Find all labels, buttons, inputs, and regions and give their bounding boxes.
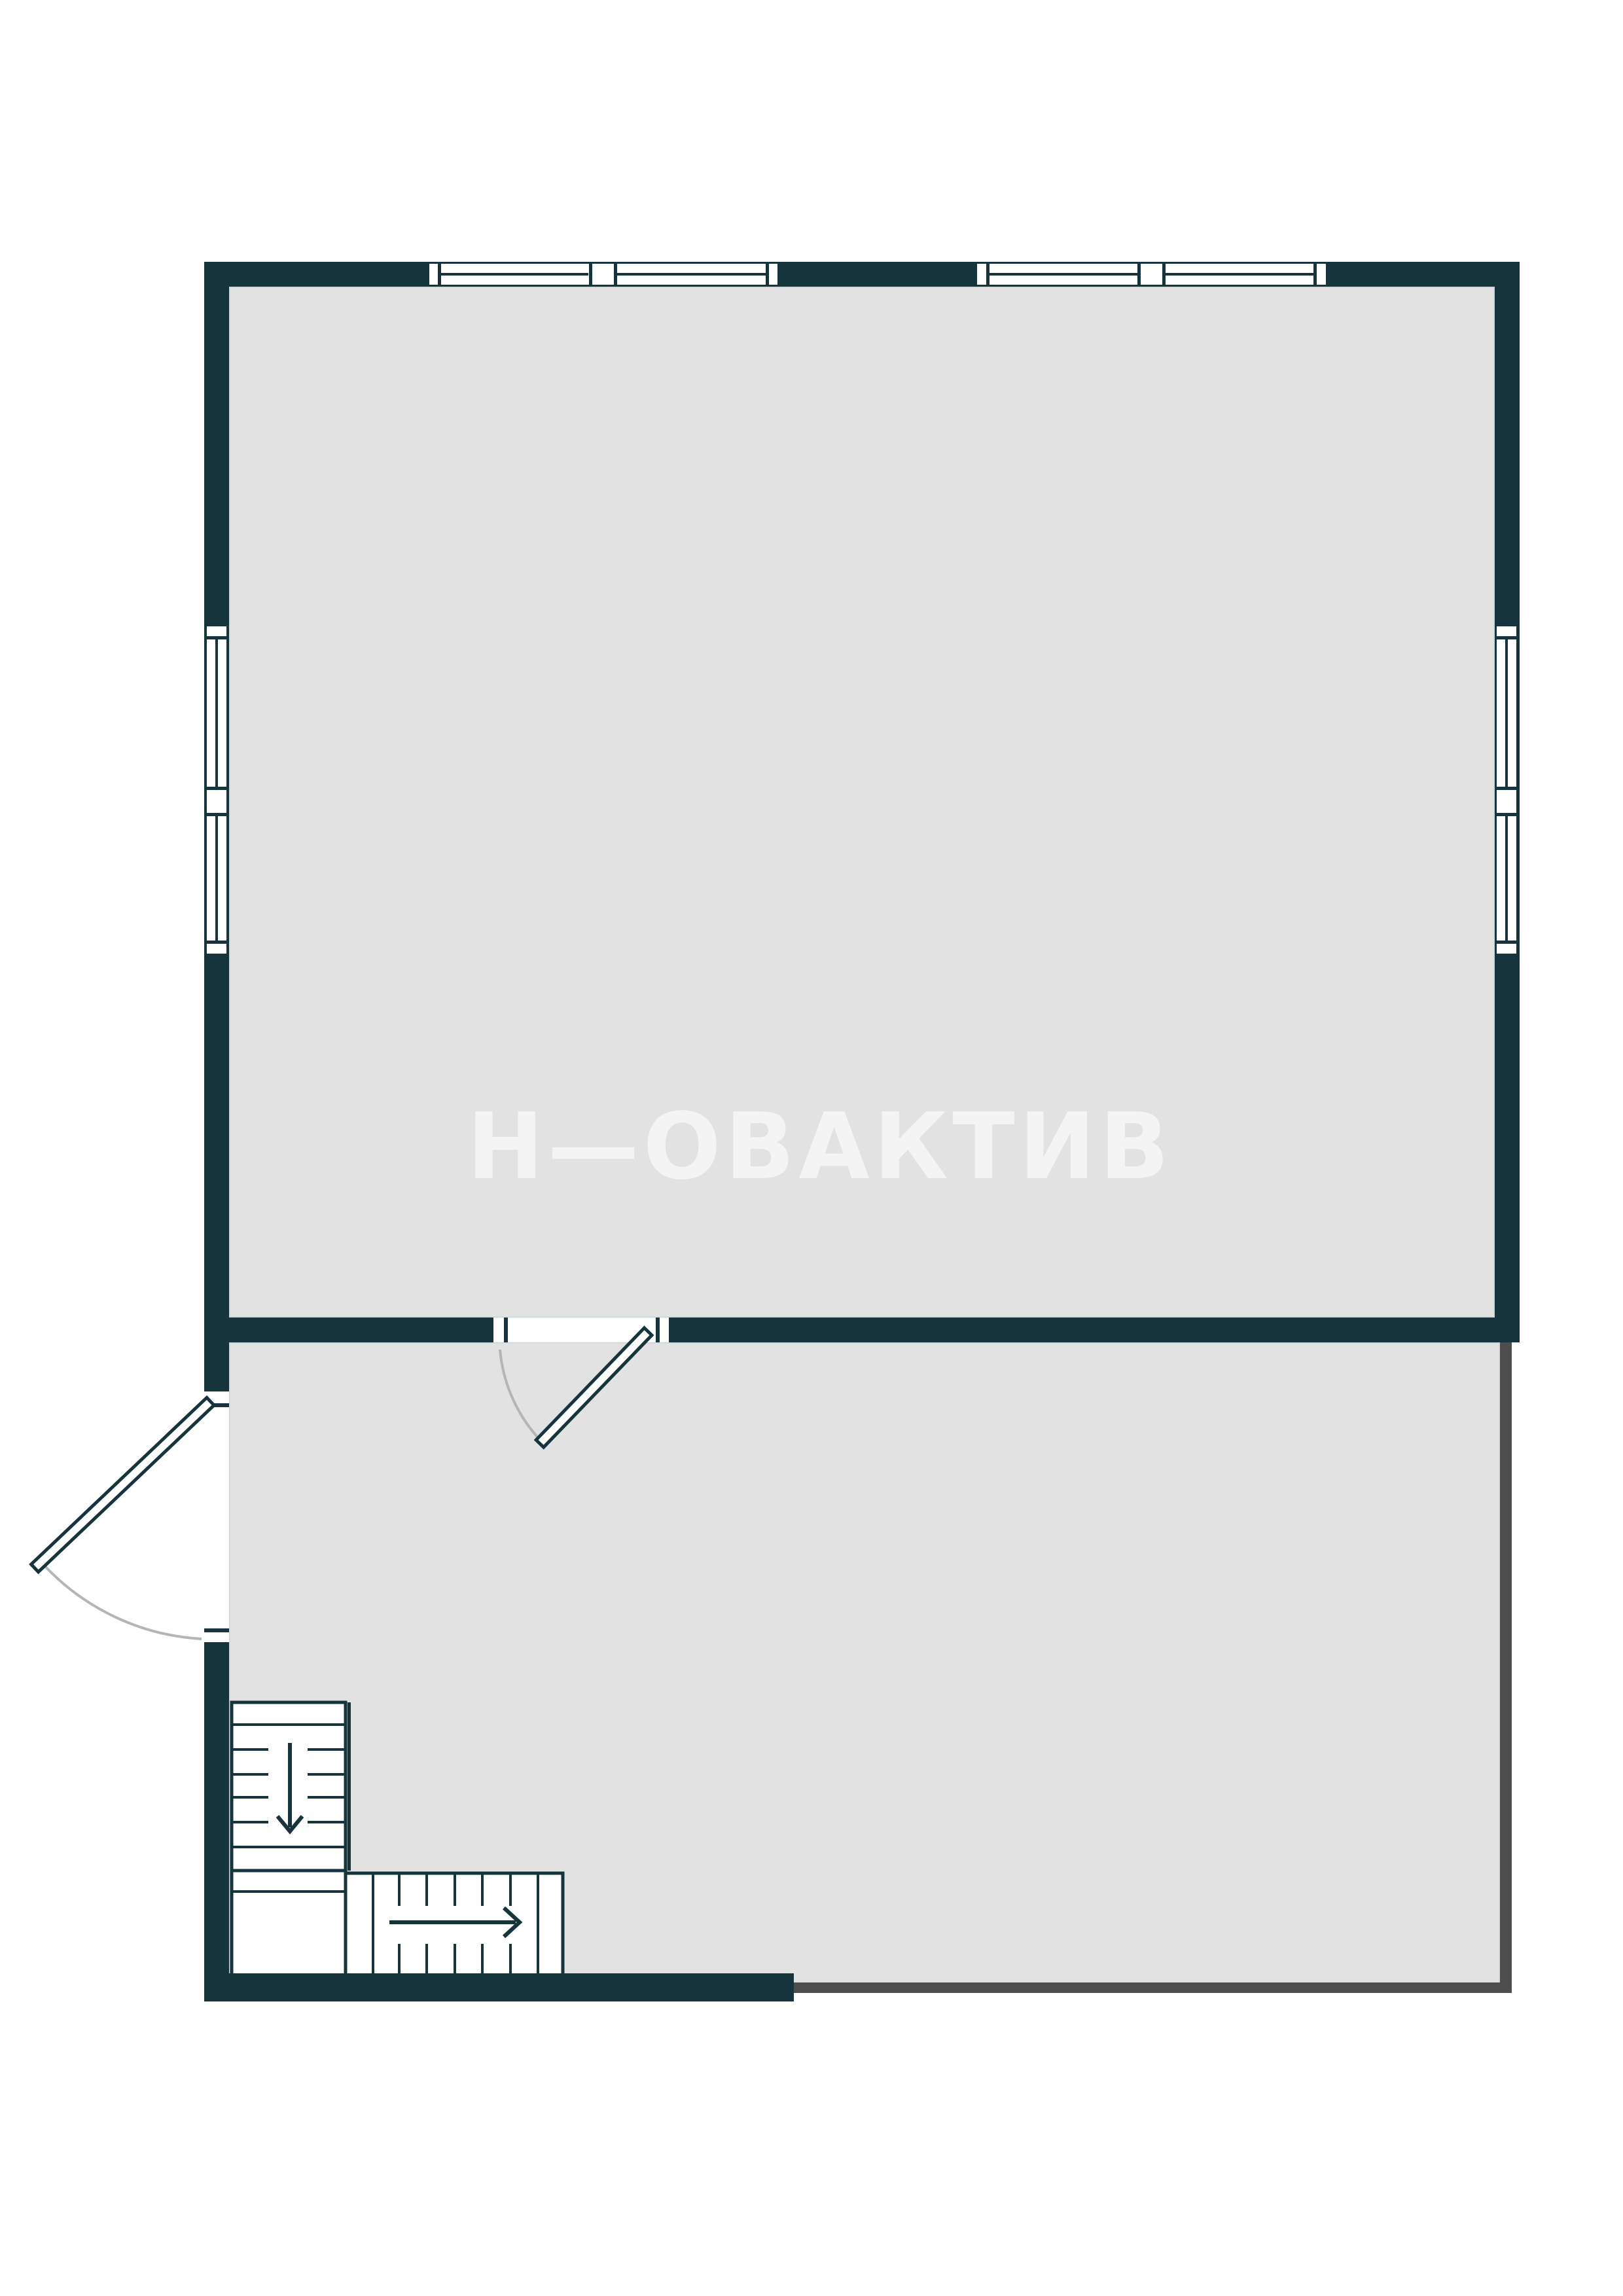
window-glass-line: [1505, 816, 1508, 941]
floor-plan-drawing: Н—ОВАКТИВ: [0, 0, 1623, 2296]
window-jamb-line: [1137, 264, 1141, 285]
stair-rail-line: [348, 1702, 351, 1871]
watermark-logo: Н—ОВАКТИВ: [467, 1094, 1173, 1200]
window-jamb-line: [1497, 813, 1516, 816]
window-group-left-wall: [207, 626, 226, 954]
bottom-wall: [204, 1973, 794, 2001]
right-boundary-line: [1500, 1342, 1512, 1993]
window-jamb-line: [1497, 787, 1516, 790]
window-jamb-line: [438, 264, 441, 285]
window-glass-line: [617, 273, 766, 276]
door-opening: [204, 1391, 229, 1642]
door-jamb: [504, 1318, 508, 1342]
window-glass-line: [1505, 639, 1508, 787]
door-jamb: [204, 1628, 229, 1632]
window-glass-line: [215, 816, 218, 941]
bottom-boundary-line: [794, 1982, 1512, 1993]
window-jamb-line: [986, 264, 990, 285]
window-jamb-line: [1497, 636, 1516, 639]
stair-landing: [232, 1871, 346, 1975]
window-jamb-line: [207, 787, 226, 790]
door-swing-arc: [43, 1564, 202, 1639]
window-glass-line: [441, 273, 588, 276]
window-jamb-line: [207, 941, 226, 944]
window-glass-line: [1166, 273, 1313, 276]
exterior-door: [31, 1391, 229, 1642]
window-glass-line: [215, 639, 218, 787]
window-jamb-line: [766, 264, 769, 285]
middle-wall: [204, 1318, 1520, 1342]
window-jamb-line: [1497, 941, 1516, 944]
window-jamb-line: [614, 264, 617, 285]
window-jamb-line: [589, 264, 592, 285]
window-glass-line: [990, 273, 1137, 276]
window-group-top-right: [977, 264, 1326, 285]
window-jamb-line: [207, 813, 226, 816]
window-jamb-line: [1162, 264, 1166, 285]
floor-plan-page: Н—ОВАКТИВ: [0, 0, 1623, 2296]
door-jamb: [656, 1318, 660, 1342]
window-jamb-line: [1313, 264, 1317, 285]
door-leaf: [31, 1397, 214, 1571]
door-leaf-panel: [31, 1397, 214, 1571]
window-jamb-line: [207, 636, 226, 639]
window-group-right-wall: [1497, 626, 1516, 954]
window-group-top-left: [429, 264, 777, 285]
